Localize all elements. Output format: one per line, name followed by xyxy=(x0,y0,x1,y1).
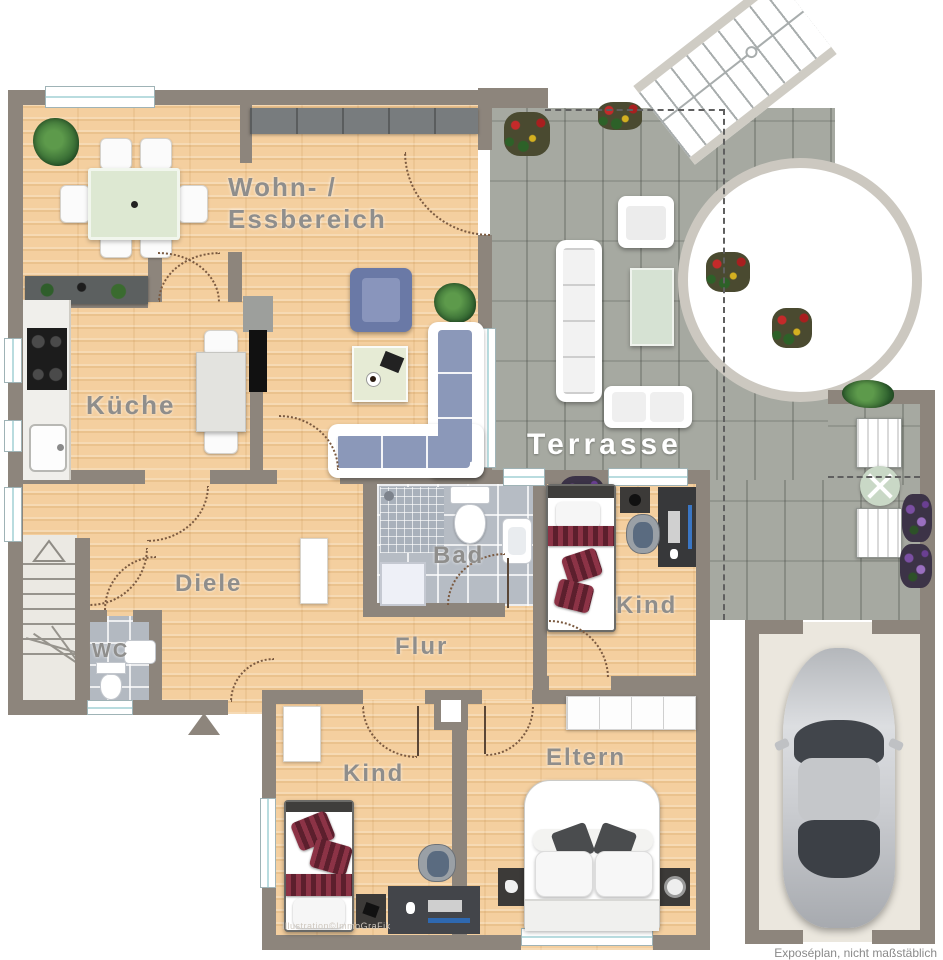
bed-double xyxy=(524,780,660,930)
faucet xyxy=(57,444,64,451)
kitchen-sink xyxy=(29,424,67,472)
wall-segment xyxy=(533,676,549,690)
striped-pillow xyxy=(553,578,595,614)
plant xyxy=(434,283,476,323)
window xyxy=(608,468,688,486)
cup-coffee xyxy=(370,376,376,382)
tablet xyxy=(380,351,405,373)
window xyxy=(87,700,133,715)
outdoor-sofa xyxy=(556,240,602,402)
car-rear-window xyxy=(798,820,880,878)
kitchen-table xyxy=(196,352,246,432)
door-leaf-line xyxy=(507,558,509,608)
window xyxy=(503,468,545,486)
flower-pot xyxy=(706,252,750,292)
bed-single xyxy=(284,800,354,932)
lamp xyxy=(664,876,686,898)
room-label-kind-unten: Kind xyxy=(343,760,404,788)
flower-pot xyxy=(900,544,932,588)
outdoor-armchair-cushion xyxy=(626,206,666,240)
property-line xyxy=(828,476,920,478)
round-garden-table xyxy=(860,466,900,506)
nightstand-item xyxy=(629,494,641,506)
office-chair xyxy=(626,514,660,554)
mouse xyxy=(670,549,678,559)
wall-segment xyxy=(745,620,759,944)
car xyxy=(783,648,895,928)
window xyxy=(45,86,155,108)
stair-handrail xyxy=(661,11,804,123)
room-label-eltern: Eltern xyxy=(546,744,626,772)
car-roof xyxy=(798,758,880,822)
flower-pot xyxy=(772,308,812,348)
sun-lounger xyxy=(856,418,902,468)
room-label-kueche: Küche xyxy=(86,390,175,421)
wall-segment xyxy=(478,105,492,150)
wall-segment xyxy=(872,620,934,634)
mouse xyxy=(406,902,415,914)
nightstand-item xyxy=(362,902,379,918)
room-label-bad: Bad xyxy=(433,542,484,570)
wall-segment xyxy=(75,538,90,710)
plant xyxy=(33,118,79,166)
window xyxy=(4,487,22,542)
wall-segment xyxy=(696,470,710,704)
room-label-terrasse: Terrasse xyxy=(527,428,682,462)
wall-segment xyxy=(533,484,547,690)
bench-cushion xyxy=(650,392,684,422)
property-line xyxy=(545,109,725,111)
shower-head xyxy=(384,491,394,501)
plan-disclaimer: Exposéplan, nicht maßstäblich xyxy=(762,946,937,960)
keyboard xyxy=(668,511,680,543)
dining-chair xyxy=(60,185,90,223)
wall-segment xyxy=(478,235,492,330)
nightstand-deco xyxy=(505,880,518,893)
toilet-bowl xyxy=(454,504,486,544)
room-label-wohn-line1: Wohn- / xyxy=(228,172,337,203)
sofa-cushions-horizontal xyxy=(336,436,470,468)
outdoor-armchair xyxy=(618,196,674,248)
window xyxy=(260,798,276,888)
wall-segment xyxy=(745,930,803,944)
window xyxy=(4,420,22,452)
wall-segment xyxy=(262,690,363,704)
tv-shelf xyxy=(243,296,273,332)
illustration-credit: Illustration©ImmoGraFik xyxy=(282,921,391,931)
pillow xyxy=(595,851,653,897)
desk xyxy=(388,886,480,934)
table-center-dot xyxy=(131,201,138,208)
desk xyxy=(658,487,696,567)
door-leaf xyxy=(300,538,328,604)
chair-seat xyxy=(427,851,449,877)
wardrobe xyxy=(566,696,696,730)
striped-blanket-band xyxy=(548,526,614,546)
headboard xyxy=(548,486,614,498)
room-label-diele: Diele xyxy=(175,570,242,598)
wc-toilet-bowl xyxy=(100,674,122,700)
striped-pillow xyxy=(309,837,354,876)
monitor xyxy=(688,505,692,549)
wall-segment xyxy=(210,470,277,484)
armchair xyxy=(350,268,412,332)
outdoor-sofa-cushions xyxy=(563,248,595,394)
wall-segment xyxy=(920,390,935,944)
window xyxy=(4,338,22,383)
room-label-wc: WC xyxy=(92,640,129,663)
chair-seat xyxy=(633,522,653,548)
dining-chair xyxy=(178,185,208,223)
floor-plan: Wohn- / Essbereich Küche Terrasse Bad Di… xyxy=(0,0,943,960)
pillow xyxy=(556,502,600,528)
wall-segment xyxy=(228,252,242,302)
bed-single xyxy=(546,484,616,632)
nightstand xyxy=(498,868,526,906)
bench-cushion xyxy=(612,392,646,422)
wall-segment xyxy=(262,935,521,950)
flower-box xyxy=(598,102,642,130)
coffee-table xyxy=(352,346,408,402)
tv-screen xyxy=(249,330,267,392)
bed-frame-bottom xyxy=(525,899,659,931)
room-label-wohn-line2: Essbereich xyxy=(228,204,387,235)
room-label-kind-mitte: Kind xyxy=(616,592,677,620)
sun-lounger xyxy=(856,508,902,558)
dining-chair xyxy=(140,138,172,170)
shaft-block xyxy=(434,690,468,730)
entrance-arrow-icon xyxy=(188,713,220,735)
washing-machine xyxy=(380,562,426,606)
wc-toilet xyxy=(96,662,126,674)
office-chair xyxy=(418,844,456,882)
outdoor-table xyxy=(630,268,674,346)
tv-lowboard xyxy=(250,108,478,134)
stairs-up-arrow-icon xyxy=(30,538,68,564)
door-leaf-line xyxy=(417,706,419,756)
wall-segment xyxy=(85,610,107,622)
nightstand xyxy=(660,868,690,906)
dining-chair xyxy=(100,138,132,170)
wall-segment xyxy=(8,90,23,715)
wall-segment xyxy=(872,930,935,944)
bush xyxy=(842,380,894,408)
sink-basin xyxy=(508,527,526,555)
property-line xyxy=(723,109,725,620)
stove-cooktop xyxy=(27,328,67,390)
armchair-cushion xyxy=(362,278,400,322)
wall-segment xyxy=(363,470,377,617)
flower-pot xyxy=(902,494,932,542)
shaft-opening xyxy=(441,700,461,722)
flower-box xyxy=(504,112,550,156)
dining-table xyxy=(88,168,180,240)
pillow xyxy=(535,851,593,897)
corner-cabinet xyxy=(283,706,321,762)
wall-segment xyxy=(696,690,710,950)
monitor xyxy=(428,918,470,923)
nightstand xyxy=(620,487,650,513)
room-label-flur: Flur xyxy=(395,633,448,661)
outdoor-bench xyxy=(604,386,692,428)
striped-blanket-band xyxy=(286,874,352,896)
toilet xyxy=(450,486,490,504)
keyboard xyxy=(428,900,462,912)
headboard xyxy=(286,802,352,812)
